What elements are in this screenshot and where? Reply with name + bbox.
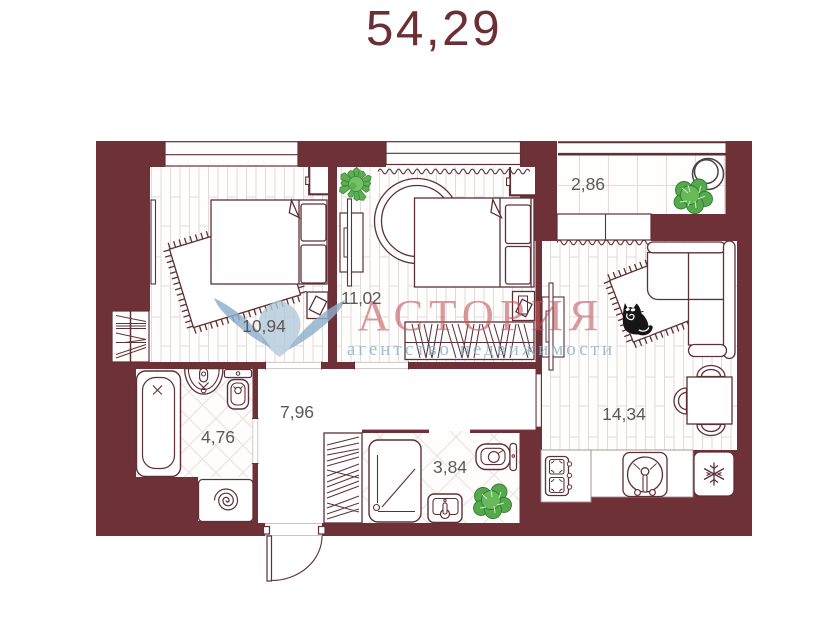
svg-text:агентство недвижимости: агентство недвижимости <box>347 339 615 360</box>
svg-text:54,29: 54,29 <box>366 1 502 56</box>
svg-text:3,84: 3,84 <box>433 457 467 477</box>
svg-text:14,34: 14,34 <box>602 404 646 424</box>
svg-text:АСТОРИЯ: АСТОРИЯ <box>358 290 605 340</box>
svg-text:11,02: 11,02 <box>341 288 381 308</box>
svg-text:4,76: 4,76 <box>201 427 235 447</box>
svg-text:10,94: 10,94 <box>242 316 286 336</box>
svg-text:7,96: 7,96 <box>280 402 314 422</box>
svg-text:2,86: 2,86 <box>571 174 605 194</box>
